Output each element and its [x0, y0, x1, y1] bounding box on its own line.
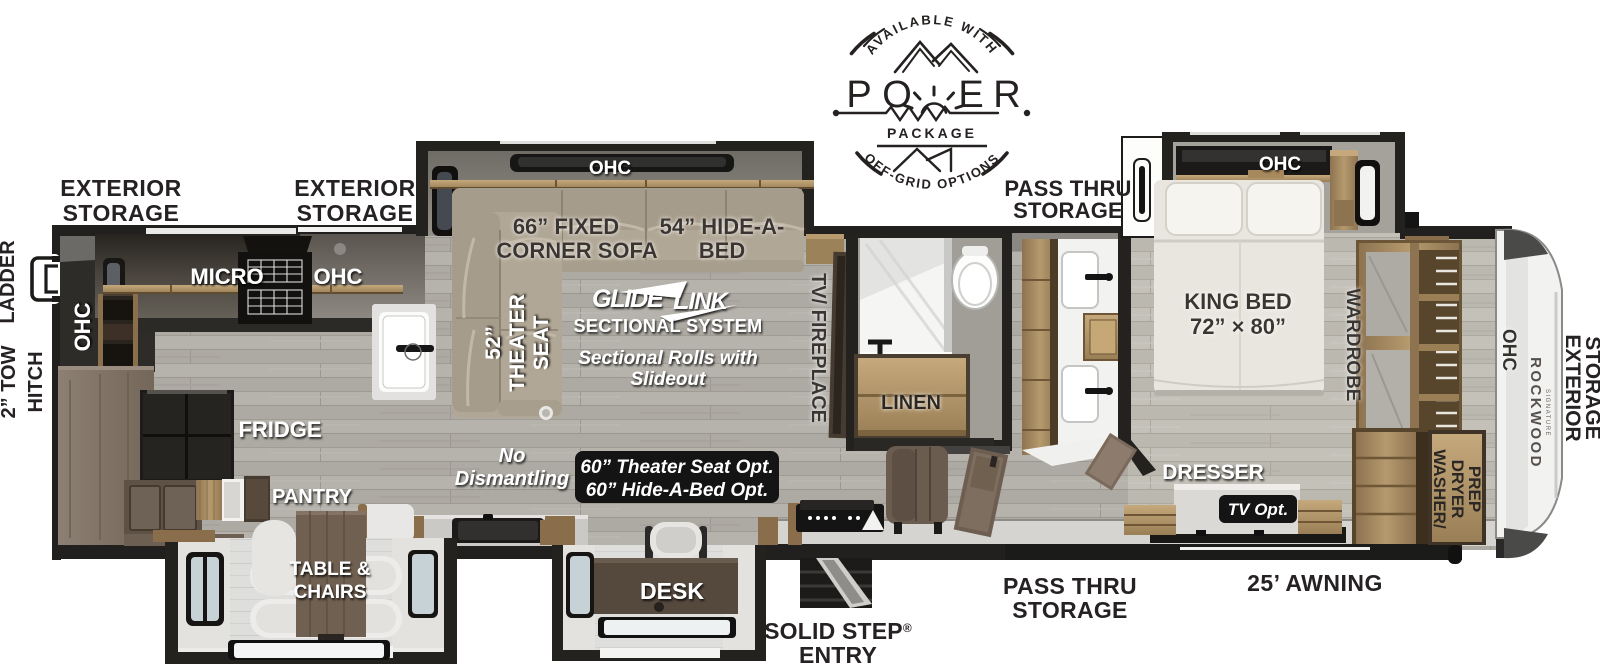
- svg-text:ROCKWOOD: ROCKWOOD: [1527, 357, 1544, 469]
- svg-text:DRESSER: DRESSER: [1162, 461, 1264, 484]
- svg-text:LADDER: LADDER: [0, 240, 19, 324]
- svg-text:PREP: PREP: [1465, 466, 1484, 512]
- svg-text:PACKAGE: PACKAGE: [887, 125, 977, 141]
- svg-text:EXTERIOR: EXTERIOR: [1561, 334, 1584, 441]
- svg-text:54” HIDE-A-: 54” HIDE-A-: [660, 214, 785, 239]
- svg-text:SIGNATURE: SIGNATURE: [1544, 389, 1550, 437]
- svg-text:60” Theater Seat Opt.: 60” Theater Seat Opt.: [580, 457, 773, 478]
- svg-text:No: No: [499, 445, 526, 467]
- svg-text:PASS THRU: PASS THRU: [1003, 573, 1137, 599]
- svg-text:EXTERIOR: EXTERIOR: [294, 175, 416, 201]
- svg-text:DESK: DESK: [640, 578, 704, 604]
- svg-text:2” TOW: 2” TOW: [0, 345, 20, 418]
- svg-text:OHC: OHC: [70, 302, 95, 351]
- svg-text:EXTERIOR: EXTERIOR: [60, 175, 182, 201]
- svg-text:O: O: [882, 74, 912, 116]
- svg-text:PANTRY: PANTRY: [272, 486, 353, 508]
- svg-text:MICRO: MICRO: [190, 264, 263, 289]
- svg-text:HITCH: HITCH: [25, 351, 47, 412]
- svg-text:OHC: OHC: [314, 264, 363, 289]
- svg-text:R: R: [993, 74, 1020, 116]
- svg-text:Dismantling: Dismantling: [455, 468, 569, 490]
- svg-text:OHC: OHC: [589, 158, 632, 179]
- svg-text:OHC: OHC: [1498, 329, 1519, 372]
- svg-text:DRYER: DRYER: [1448, 460, 1467, 519]
- svg-text:BED: BED: [699, 238, 745, 263]
- svg-text:OHC: OHC: [1259, 154, 1302, 175]
- svg-text:TV Opt.: TV Opt.: [1228, 500, 1288, 519]
- svg-text:60” Hide-A-Bed Opt.: 60” Hide-A-Bed Opt.: [586, 480, 769, 501]
- svg-text:TV/ FIREPLACE: TV/ FIREPLACE: [807, 273, 829, 423]
- svg-text:52”: 52”: [482, 326, 505, 360]
- svg-text:SECTIONAL SYSTEM: SECTIONAL SYSTEM: [573, 316, 762, 336]
- svg-text:LINEN: LINEN: [881, 392, 941, 414]
- svg-text:25’ AWNING: 25’ AWNING: [1247, 570, 1383, 596]
- svg-text:CHAIRS: CHAIRS: [294, 582, 367, 603]
- svg-text:P: P: [846, 74, 871, 116]
- svg-text:STORAGE: STORAGE: [297, 200, 414, 226]
- svg-text:CORNER SOFA: CORNER SOFA: [496, 238, 657, 263]
- svg-text:ENTRY: ENTRY: [799, 642, 877, 668]
- svg-text:THEATER: THEATER: [506, 294, 529, 392]
- svg-text:72” × 80”: 72” × 80”: [1190, 314, 1286, 339]
- svg-text:KING BED: KING BED: [1184, 289, 1292, 314]
- svg-text:STORAGE: STORAGE: [63, 200, 180, 226]
- svg-text:E: E: [958, 74, 983, 116]
- svg-text:WASHER/: WASHER/: [1430, 449, 1449, 529]
- svg-text:Slideout: Slideout: [631, 369, 707, 390]
- svg-text:Sectional Rolls with: Sectional Rolls with: [578, 348, 757, 369]
- svg-text:STORAGE: STORAGE: [1012, 597, 1127, 623]
- svg-text:66” FIXED: 66” FIXED: [513, 214, 619, 239]
- svg-text:WARDROBE: WARDROBE: [1342, 289, 1363, 402]
- svg-text:SOLID STEP®: SOLID STEP®: [764, 618, 912, 644]
- svg-text:STORAGE: STORAGE: [1581, 336, 1600, 439]
- svg-text:FRIDGE: FRIDGE: [238, 417, 321, 442]
- svg-text:TABLE &: TABLE &: [290, 559, 371, 580]
- svg-text:GLIDE: GLIDE: [592, 285, 665, 313]
- svg-text:SEAT: SEAT: [530, 316, 553, 371]
- svg-text:STORAGE: STORAGE: [1013, 198, 1123, 223]
- svg-text:LINK: LINK: [673, 285, 730, 315]
